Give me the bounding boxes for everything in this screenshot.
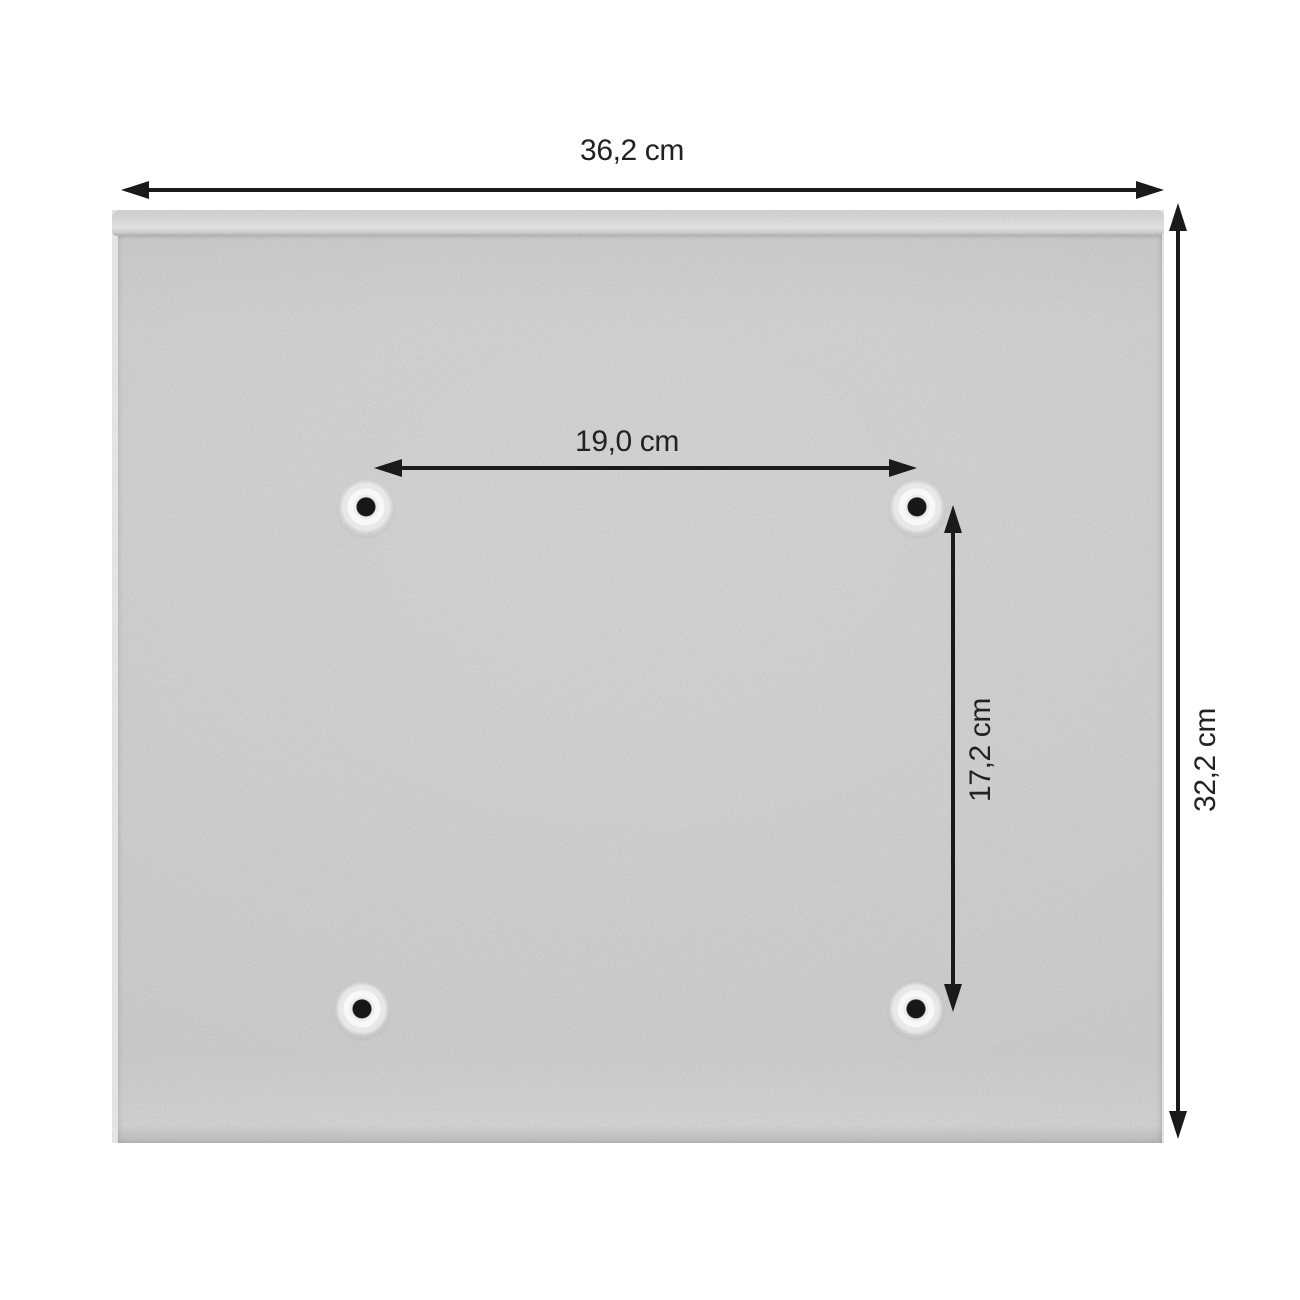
height-dimension-label: 32,2 cm bbox=[1188, 690, 1224, 830]
hole-spacing-horizontal-label: 19,0 cm bbox=[354, 424, 900, 460]
width-dimension-label: 36,2 cm bbox=[112, 133, 1152, 169]
dimension-line bbox=[1176, 231, 1180, 1111]
panel-top-edge bbox=[112, 210, 1164, 236]
width-dimension-arrow bbox=[121, 181, 1164, 199]
arrowhead-left-icon bbox=[374, 459, 402, 477]
arrowhead-up-icon bbox=[944, 505, 962, 533]
dimension-line bbox=[402, 466, 889, 470]
hole-spacing-vertical-arrow bbox=[944, 505, 962, 1012]
dimension-line bbox=[149, 188, 1136, 192]
arrowhead-down-icon bbox=[944, 984, 962, 1012]
arrowhead-right-icon bbox=[1136, 181, 1164, 199]
product-dimension-diagram: 36,2 cm 32,2 cm 19,0 cm 17,2 cm bbox=[0, 0, 1300, 1300]
dimension-line bbox=[951, 533, 955, 984]
mounting-hole-bottom-left bbox=[334, 982, 390, 1038]
arrowhead-up-icon bbox=[1169, 203, 1187, 231]
panel-back-face bbox=[118, 235, 1162, 1143]
hole-spacing-horizontal-arrow bbox=[374, 459, 917, 477]
hole-spacing-vertical-label: 17,2 cm bbox=[963, 680, 999, 820]
arrowhead-left-icon bbox=[121, 181, 149, 199]
arrowhead-down-icon bbox=[1169, 1111, 1187, 1139]
mounting-hole-bottom-right bbox=[888, 982, 944, 1038]
mounting-hole-top-left bbox=[338, 480, 394, 536]
height-dimension-arrow bbox=[1169, 203, 1187, 1139]
arrowhead-right-icon bbox=[889, 459, 917, 477]
mounting-hole-top-right bbox=[889, 480, 945, 536]
